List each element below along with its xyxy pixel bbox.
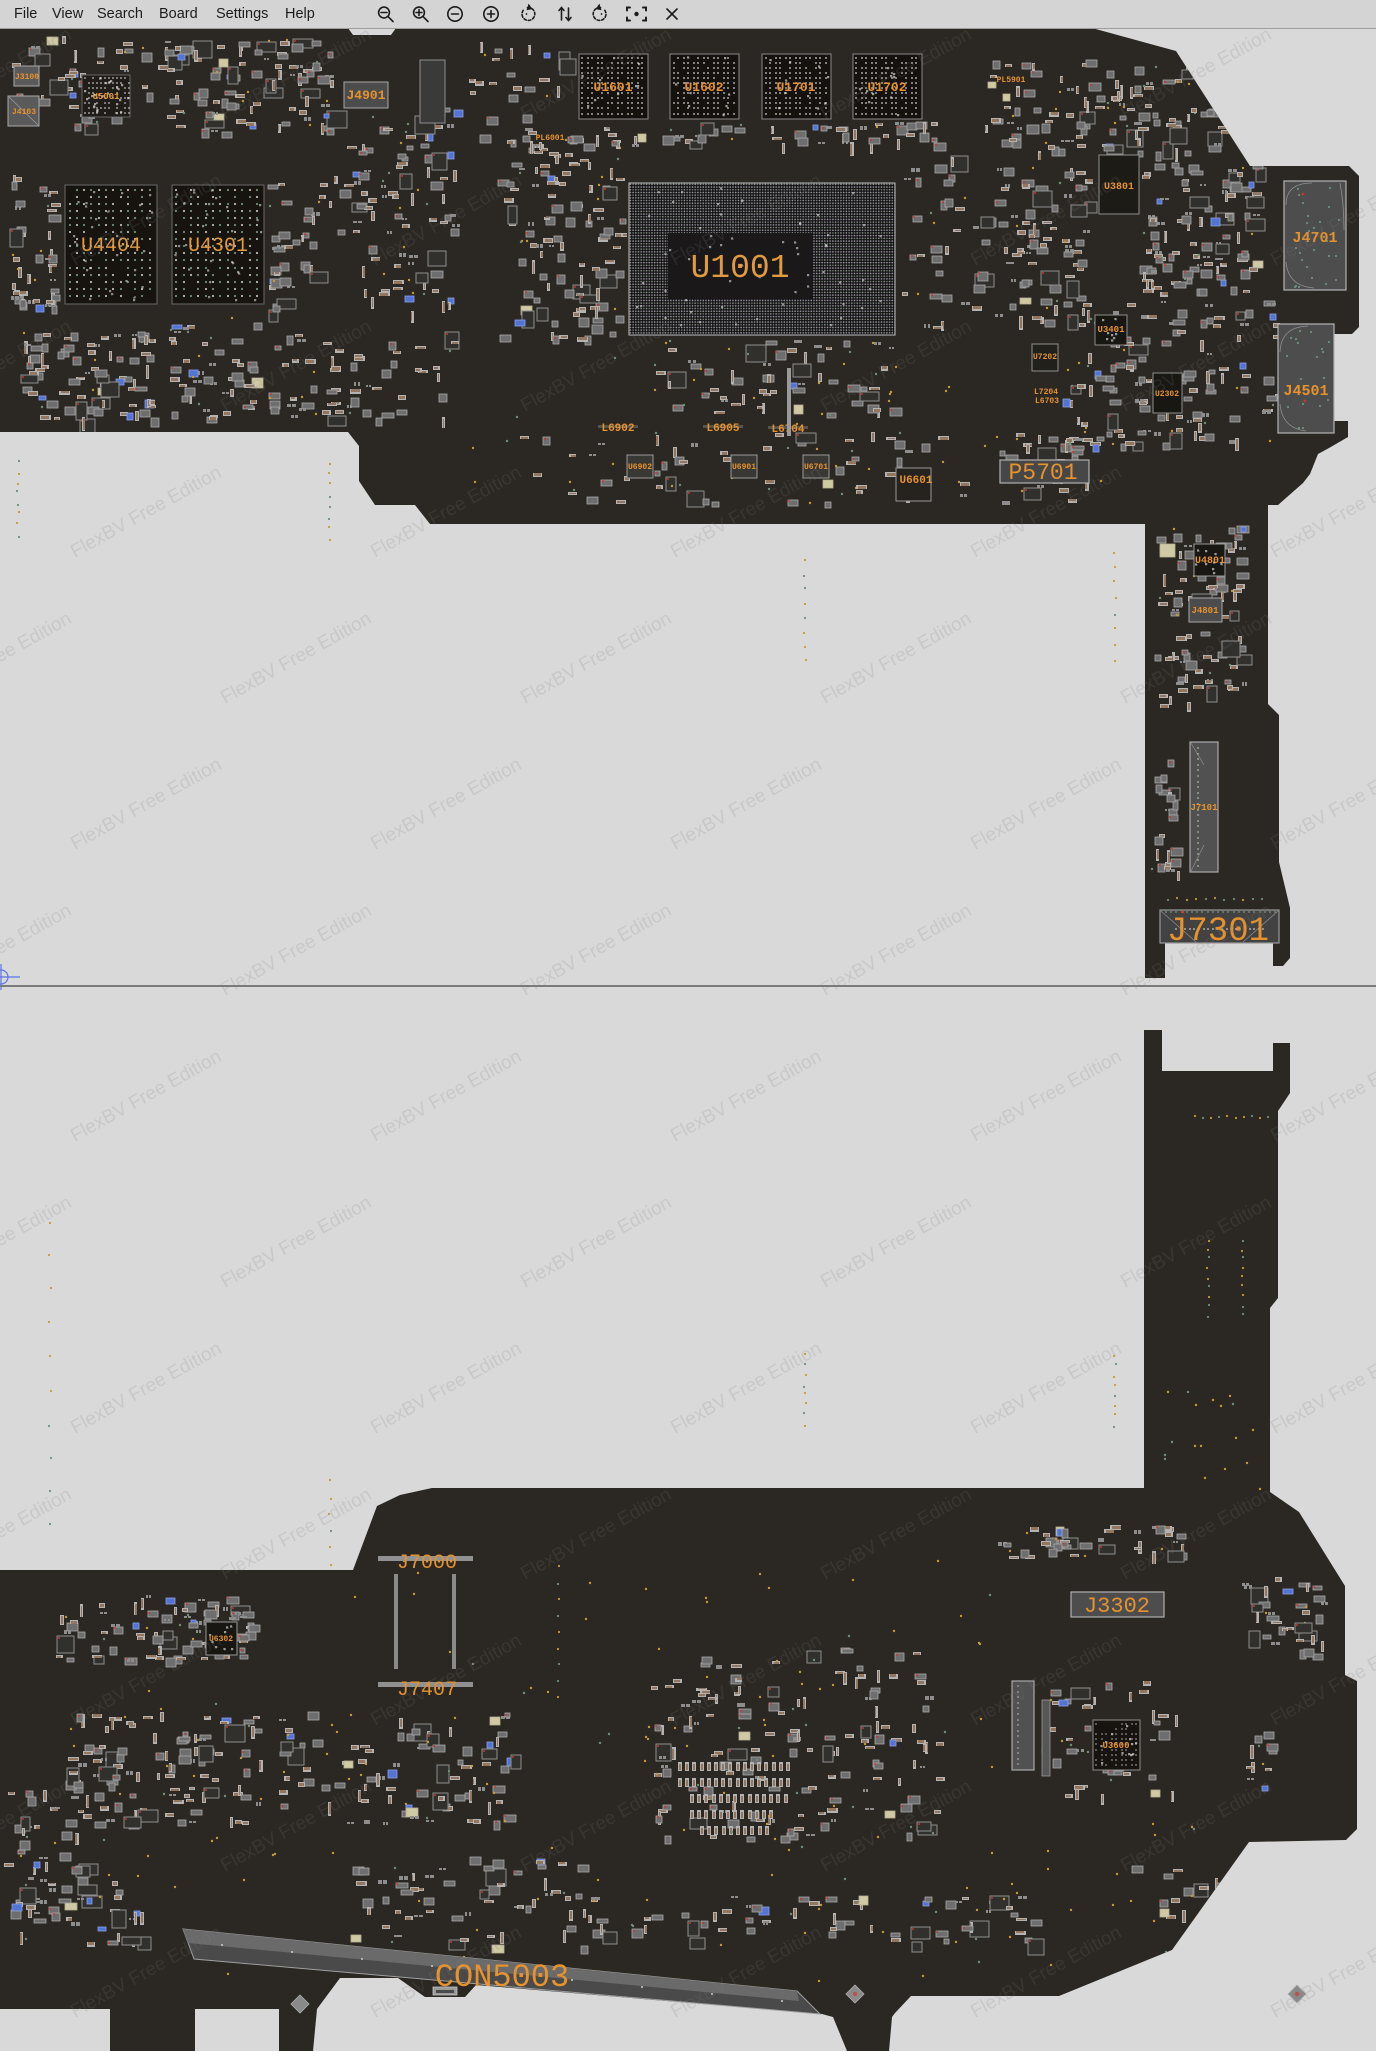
svg-text:U1602: U1602 (684, 80, 723, 95)
svg-text:J4901: J4901 (346, 88, 385, 103)
svg-text:U4301: U4301 (188, 235, 248, 258)
svg-text:U5001: U5001 (92, 92, 120, 102)
svg-text:J3100: J3100 (15, 73, 39, 82)
svg-text:J4103: J4103 (12, 108, 36, 117)
